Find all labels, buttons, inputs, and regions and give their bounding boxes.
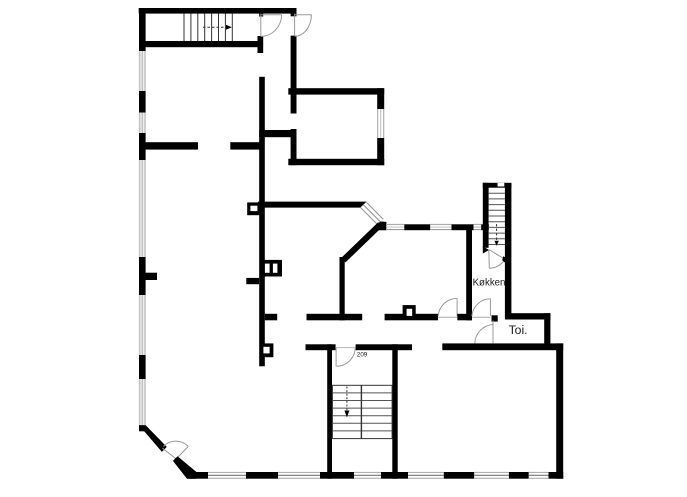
svg-text:Køkken: Køkken: [473, 277, 506, 288]
svg-text:Toi.: Toi.: [509, 323, 528, 337]
svg-text:209: 209: [357, 351, 368, 358]
